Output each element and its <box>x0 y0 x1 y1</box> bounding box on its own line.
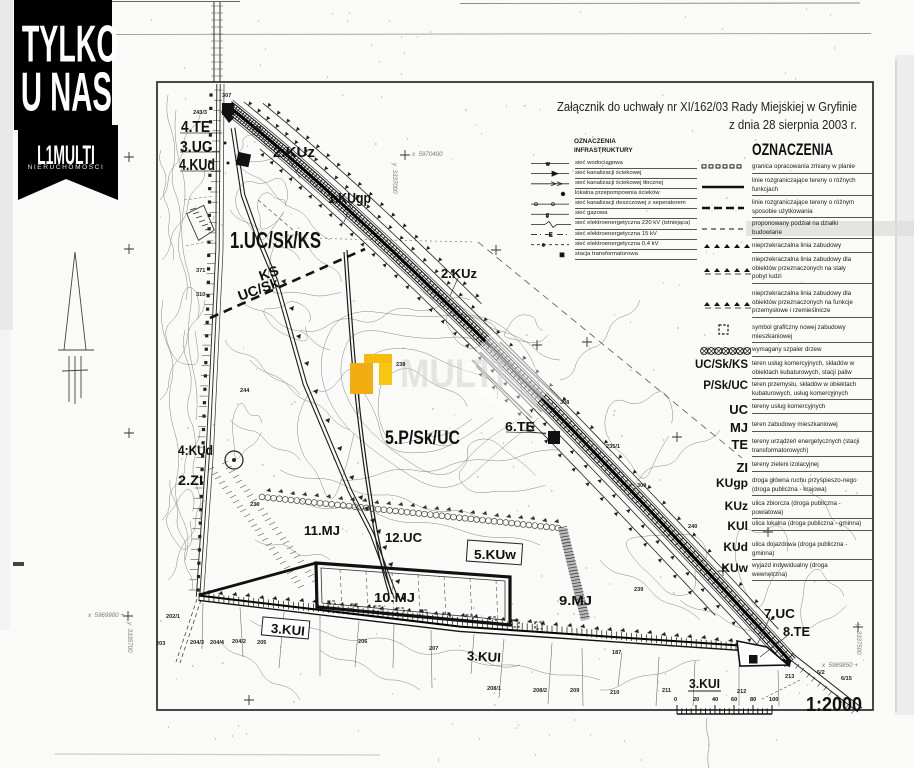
svg-text:OZNACZENIA: OZNACZENIA <box>752 140 833 159</box>
